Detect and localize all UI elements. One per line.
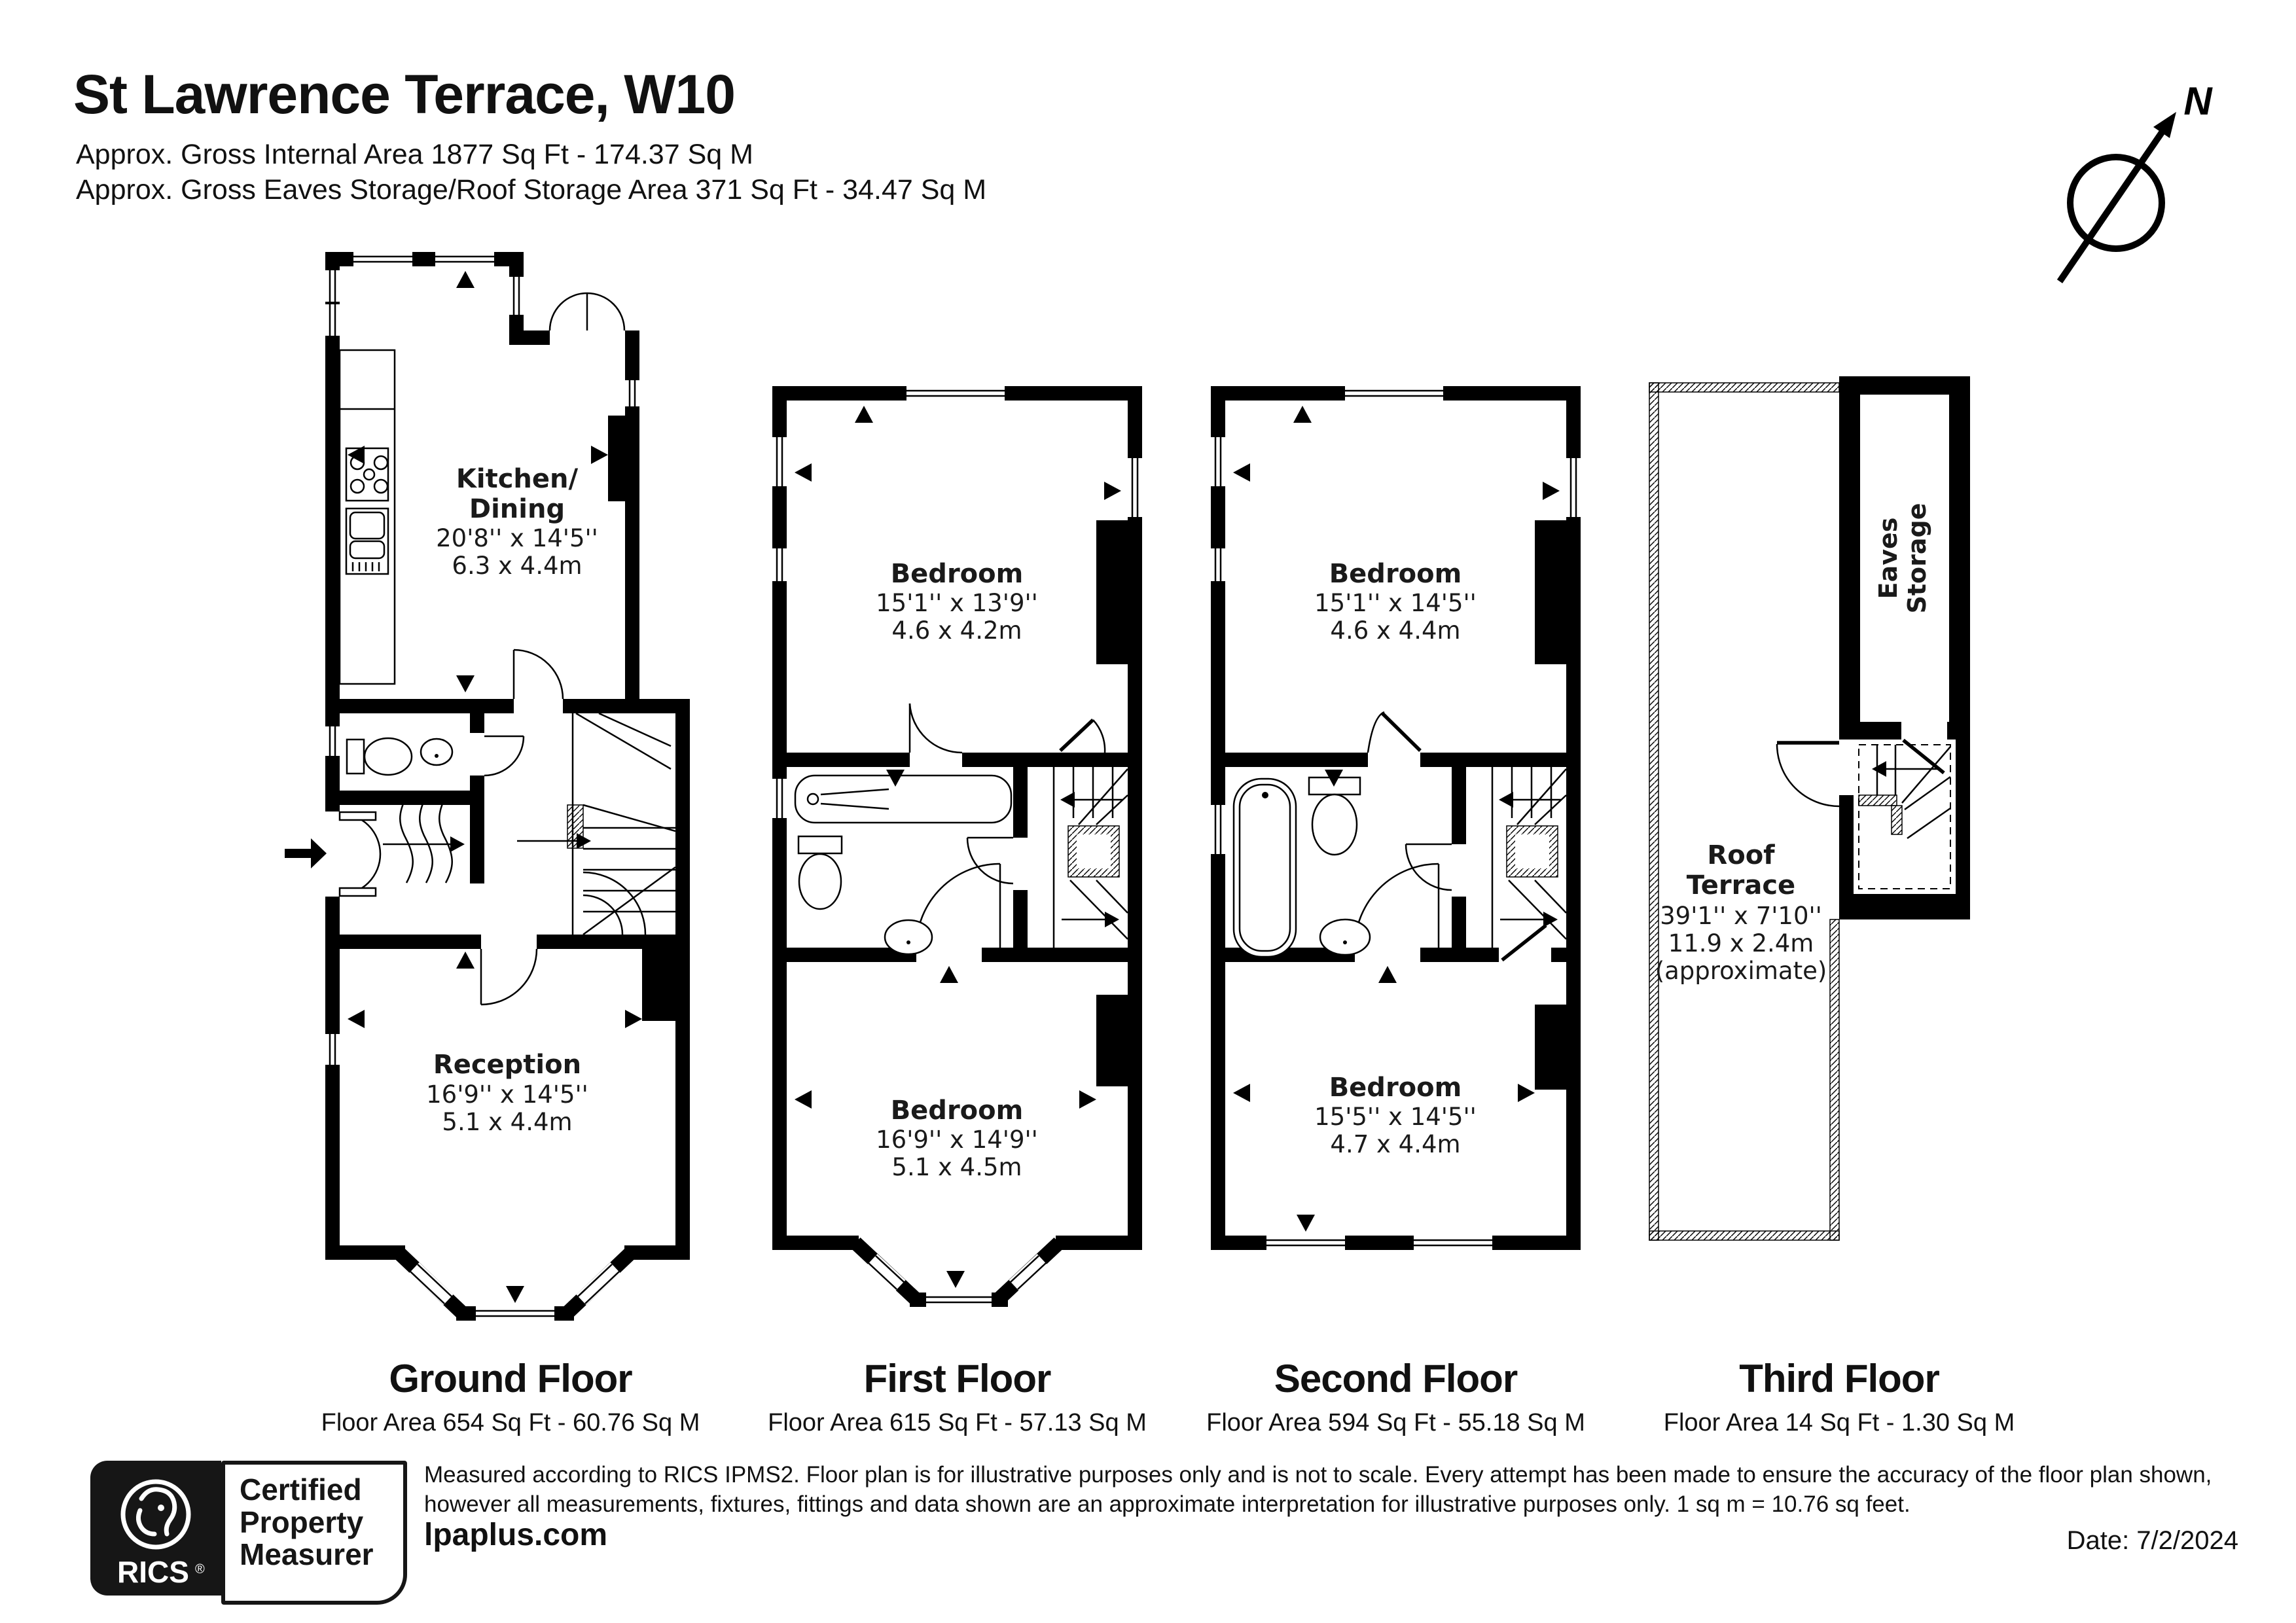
disclaimer-line-1: Measured according to RICS IPMS2. Floor … [424, 1461, 2257, 1490]
gross-eaves-area: Approx. Gross Eaves Storage/Roof Storage… [76, 174, 986, 206]
hall-draught-lines [383, 796, 465, 883]
bedroom-dims-ft: 15'1'' x 13'9'' [876, 589, 1038, 617]
kitchen-name-2: Dining [469, 494, 565, 524]
website-link[interactable]: lpaplus.com [424, 1517, 607, 1553]
first-floor-plan: Bedroom 15'1'' x 13'9'' 4.6 x 4.2m Bedro… [766, 386, 1149, 1348]
terrace-dims-m: 11.9 x 2.4m [1668, 929, 1814, 957]
bedroom-dims-ft: 15'5'' x 14'5'' [1314, 1103, 1477, 1131]
disclaimer-line-2: however all measurements, fixtures, fitt… [424, 1490, 2257, 1520]
wc-basin-icon [421, 739, 452, 765]
eaves-name-2: Storage [1903, 503, 1931, 614]
roof-terrace-walls [1649, 383, 1839, 1240]
floor-area: Floor Area 615 Sq Ft - 57.13 Sq M [766, 1409, 1149, 1437]
certified-property-measurer-badge: Certified Property Measurer [221, 1461, 407, 1605]
bedroom-dims-m: 4.6 x 4.4m [1330, 616, 1460, 645]
terrace-note: (approximate) [1655, 957, 1827, 985]
compass-north-label: N [2183, 79, 2213, 123]
wc-toilet-icon [347, 738, 412, 775]
floor-area: Floor Area 654 Sq Ft - 60.76 Sq M [301, 1409, 720, 1437]
floor-name: Second Floor [1204, 1356, 1587, 1401]
bedroom-name: Bedroom [1329, 1073, 1462, 1103]
bedroom-name: Bedroom [891, 1096, 1024, 1126]
reception-dims-m: 5.1 x 4.4m [442, 1108, 572, 1136]
page-title: St Lawrence Terrace, W10 [73, 63, 735, 126]
floor-name: Third Floor [1649, 1356, 2029, 1401]
rics-certified-logo: RICS ® Certified Property Measurer [90, 1461, 407, 1605]
rics-lion-icon: RICS ® [90, 1461, 221, 1596]
bedroom-dims-m: 4.7 x 4.4m [1330, 1130, 1460, 1158]
bedroom-dims-m: 4.6 x 4.2m [891, 616, 1022, 645]
bedroom-rear-label: Bedroom 15'1'' x 14'5'' 4.6 x 4.4m [1314, 559, 1477, 645]
rics-registered-mark: ® [195, 1562, 205, 1577]
bedroom-front-label: Bedroom 16'9'' x 14'9'' 5.1 x 4.5m [876, 1096, 1038, 1181]
eaves-name-1: Eaves [1874, 518, 1903, 599]
roof-terrace-label: Roof Terrace 39'1'' x 7'10'' 11.9 x 2.4m… [1655, 840, 1827, 985]
kitchen-name-1: Kitchen/ [456, 464, 579, 494]
stairs-icon [1054, 767, 1128, 948]
bath-icon [795, 776, 1011, 823]
basin-icon [885, 920, 932, 954]
basin-icon [1320, 919, 1370, 955]
bedroom-name: Bedroom [1329, 559, 1462, 589]
second-floor-plan: Bedroom 15'1'' x 14'5'' 4.6 x 4.4m Bedro… [1204, 386, 1587, 1348]
entry-arrow-icon [285, 838, 327, 868]
floor-area: Floor Area 594 Sq Ft - 55.18 Sq M [1204, 1409, 1587, 1437]
terrace-door [1777, 743, 1839, 806]
kitchen-label: Kitchen/ Dining 20'8'' x 14'5'' 6.3 x 4.… [436, 464, 598, 580]
bedroom-dims-ft: 15'1'' x 14'5'' [1314, 589, 1477, 617]
terrace-name-1: Roof [1707, 840, 1775, 870]
bedroom-name: Bedroom [891, 559, 1024, 589]
reception-label: Reception 16'9'' x 14'5'' 5.1 x 4.4m [426, 1050, 588, 1136]
toilet-icon [1309, 777, 1360, 855]
reception-name: Reception [433, 1050, 581, 1080]
bedroom-dims-m: 5.1 x 4.5m [891, 1153, 1022, 1181]
ground-floor-caption: Ground Floor Floor Area 654 Sq Ft - 60.7… [301, 1356, 720, 1437]
bedroom-dims-ft: 16'9'' x 14'9'' [876, 1126, 1038, 1154]
floor-name: First Floor [766, 1356, 1149, 1401]
terrace-name-2: Terrace [1687, 870, 1795, 901]
rics-brand: RICS [117, 1555, 189, 1589]
date-label: Date: 7/2/2024 [1898, 1526, 2238, 1556]
kitchen-dims-ft: 20'8'' x 14'5'' [436, 524, 598, 552]
first-floor-caption: First Floor Floor Area 615 Sq Ft - 57.13… [766, 1356, 1149, 1437]
bedroom-front-label: Bedroom 15'5'' x 14'5'' 4.7 x 4.4m [1314, 1073, 1477, 1158]
cert-line-2: Property [240, 1507, 403, 1539]
third-floor-plan: Eaves Storage Roof Terrace 39'1'' x 7'10… [1643, 376, 1970, 1253]
stairs-icon [517, 713, 675, 935]
disclaimer-text: Measured according to RICS IPMS2. Floor … [424, 1461, 2257, 1520]
bath-icon [1234, 779, 1296, 957]
toilet-icon [798, 836, 842, 909]
cert-line-1: Certified [240, 1474, 403, 1507]
compass-north-icon: N [2016, 69, 2251, 330]
bedroom-rear-label: Bedroom 15'1'' x 13'9'' 4.6 x 4.2m [876, 559, 1038, 645]
second-floor-caption: Second Floor Floor Area 594 Sq Ft - 55.1… [1204, 1356, 1587, 1437]
kitchen-dims-m: 6.3 x 4.4m [452, 552, 582, 580]
terrace-dims-ft: 39'1'' x 7'10'' [1660, 902, 1822, 930]
floor-area: Floor Area 14 Sq Ft - 1.30 Sq M [1649, 1409, 2029, 1437]
gross-internal-area: Approx. Gross Internal Area 1877 Sq Ft -… [76, 139, 753, 171]
floor-name: Ground Floor [301, 1356, 720, 1401]
third-floor-caption: Third Floor Floor Area 14 Sq Ft - 1.30 S… [1649, 1356, 2029, 1437]
cert-line-3: Measurer [240, 1539, 403, 1571]
eaves-storage-label: Eaves Storage [1874, 503, 1931, 614]
reception-dims-ft: 16'9'' x 14'5'' [426, 1080, 588, 1109]
ground-floor-plan: Kitchen/ Dining 20'8'' x 14'5'' 6.3 x 4.… [285, 252, 697, 1348]
kitchen-sink-icon [346, 508, 388, 574]
floorplan-page: St Lawrence Terrace, W10 Approx. Gross I… [0, 0, 2296, 1623]
stairs-icon [1492, 767, 1566, 948]
